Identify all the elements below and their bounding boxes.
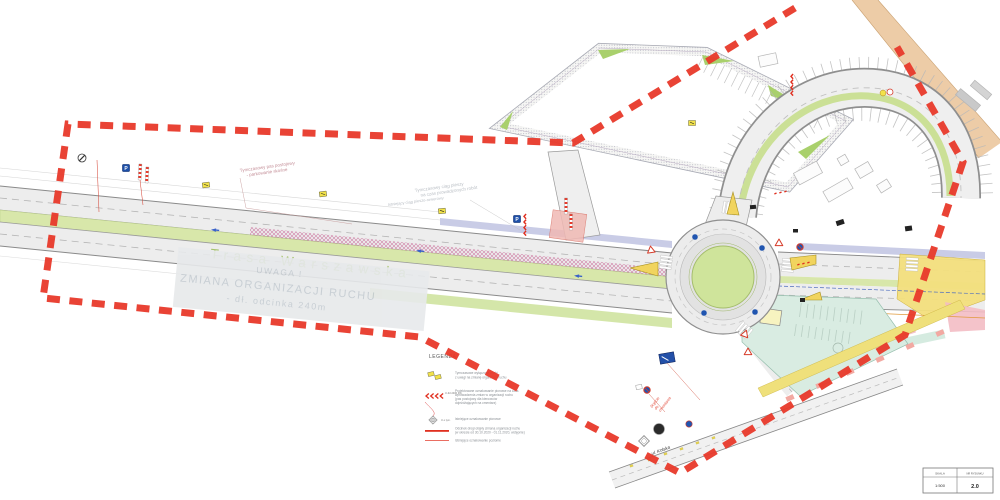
town-info-sign [659, 352, 676, 364]
svg-text:(w okresie od 30.10.2020 - 01.: (w okresie od 30.10.2020 - 01.11.2020, w… [455, 431, 525, 435]
cemetery-access-note: Dojście do cmentarza [650, 391, 672, 415]
end-restriction-sign [78, 154, 86, 162]
parking-sign-2 [513, 215, 520, 223]
work-zone-pink [549, 210, 587, 242]
legend-item3-code: U-x tym. [441, 418, 451, 422]
central-island [692, 246, 754, 308]
no-stopping-sign [797, 244, 803, 250]
legend-icon-chevrons [426, 394, 443, 399]
dark-symbol-marker [654, 424, 665, 435]
drawing-number-label: NR RYSUNKU [966, 472, 983, 476]
warning-triangle-sign [647, 246, 655, 254]
svg-text:Istniejące oznakowanie pionowe: Istniejące oznakowanie pionowe [455, 417, 501, 421]
plan-drawing: P [0, 0, 1000, 500]
legend-icon-existing-sign [429, 416, 437, 424]
legend-icon-temp-signs [428, 371, 442, 379]
title-block: SKALA 1:500 NR RYSUNKU 2.0 [923, 468, 993, 493]
blue-circle-sign [692, 234, 698, 240]
drawing-number-value: 2.0 [971, 484, 979, 490]
legend-icon-red-line [425, 430, 449, 432]
scale-label: SKALA [935, 472, 945, 476]
no-stopping-sign-2 [644, 387, 650, 393]
temp-yellow-sign [202, 182, 210, 188]
svg-text:dojeżdżających na cmentarz): dojeżdżających na cmentarz) [455, 401, 496, 405]
legend-icon-thin-red-line [425, 440, 449, 441]
scale-value: 1:500 [935, 483, 946, 488]
note-existing-path: Istniejący ciąg pieszo-rowerowy [388, 195, 444, 207]
svg-text:Istniejące oznakowanie poziome: Istniejące oznakowanie poziome [455, 439, 501, 443]
parking-sign [122, 164, 129, 172]
striped-barrier-post [138, 164, 142, 180]
traffic-organization-plan: P [0, 0, 1000, 500]
